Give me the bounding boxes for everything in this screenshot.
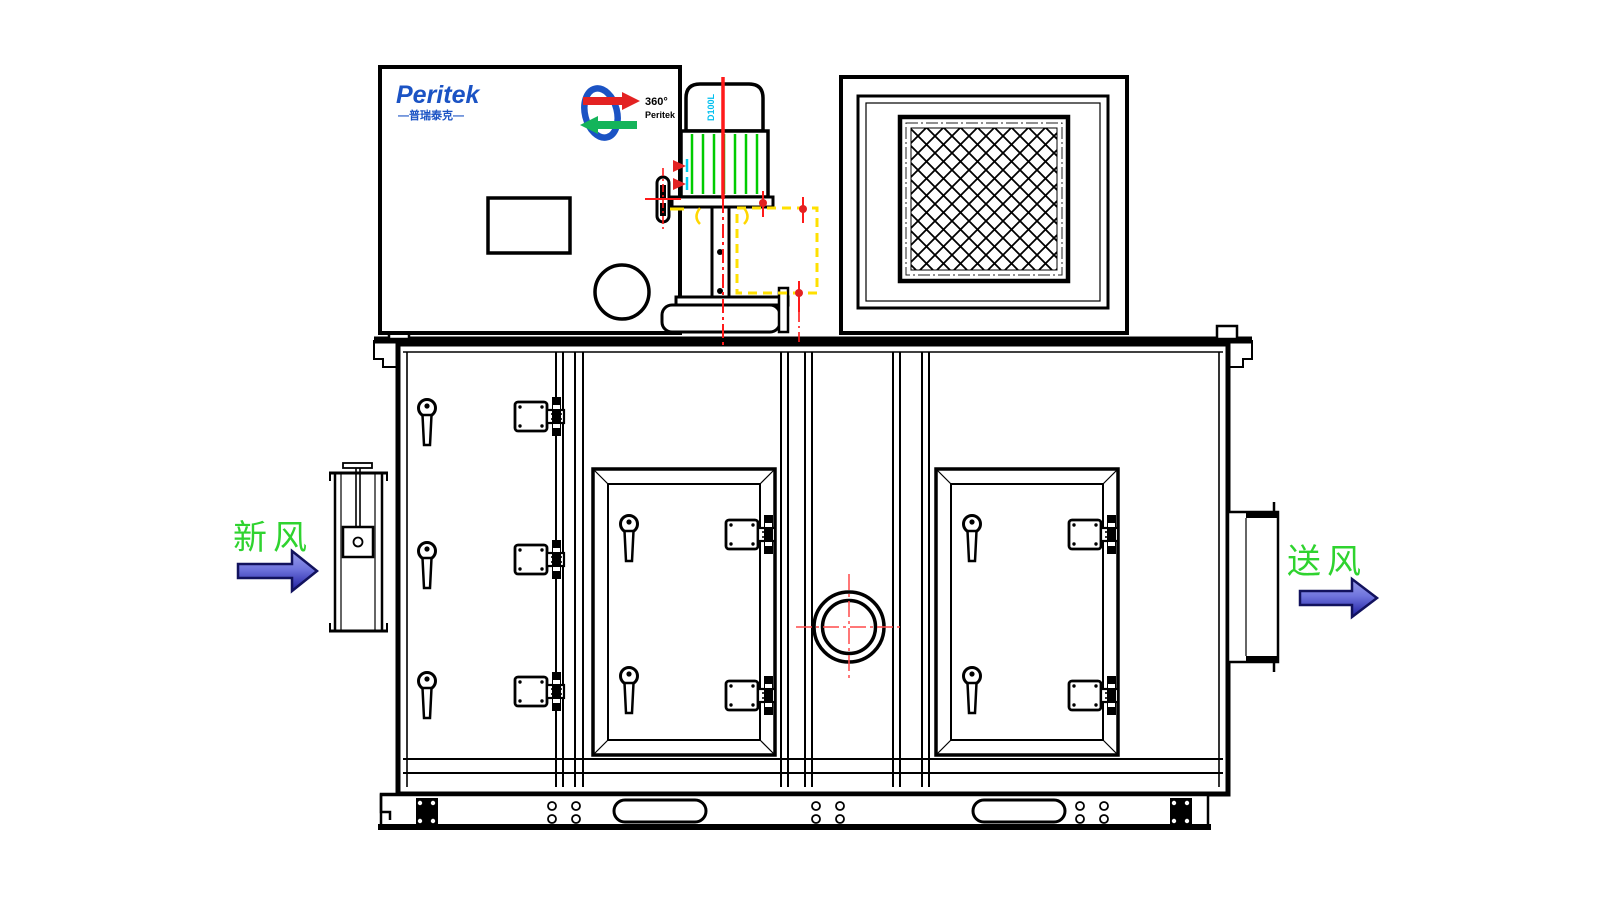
bracket-foot (662, 305, 780, 332)
peritek-logo-subtext: —普瑞泰克— (398, 108, 464, 122)
red-bolt-2 (799, 197, 807, 223)
control-panel-cutout (488, 198, 570, 253)
latch-keeper (552, 397, 561, 436)
duct-highlight-dashed (737, 208, 817, 293)
filter-grille-box (841, 77, 1127, 333)
motor-model-label: D100L (706, 93, 716, 121)
mesh-screen (911, 128, 1057, 270)
cabinet-body (374, 326, 1252, 794)
drawing-canvas: Peritek —普瑞泰克— 360° Peritek D100L (0, 0, 1613, 897)
latch-keeper (1107, 515, 1116, 554)
cable-gland-circle (595, 265, 649, 319)
latch-keeper (764, 676, 773, 715)
right-access-door (936, 469, 1118, 755)
rotor-logo-name: Peritek (645, 110, 676, 120)
middle-access-door (593, 469, 775, 755)
latch-keeper (764, 515, 773, 554)
supply-air-arrow-icon (1300, 579, 1377, 617)
supply-air-flange (1228, 502, 1278, 672)
bracket-side-bar (779, 288, 788, 332)
red-bolt-3 (795, 281, 803, 346)
damper-rod-top (343, 463, 372, 468)
forklift-slot-right (973, 800, 1065, 822)
base-bracket-right (1170, 798, 1192, 824)
base-rail (378, 794, 1211, 827)
electrical-box: Peritek —普瑞泰克— 360° Peritek (380, 67, 680, 333)
peritek-logo-text: Peritek (396, 81, 480, 109)
fresh-air-label: 新风 (233, 519, 313, 557)
flange-body (1228, 512, 1278, 662)
top-right-step (1228, 340, 1252, 367)
latch-keeper (552, 672, 561, 711)
rotor-logo-degree: 360° (645, 96, 668, 108)
forklift-slot-left (614, 800, 706, 822)
yellow-arc-left (697, 208, 701, 224)
fresh-air-damper (329, 463, 388, 631)
actuator-shaft (354, 538, 363, 547)
base-bracket-left (416, 798, 438, 824)
yellow-arc-right (744, 208, 748, 224)
engineering-drawing: Peritek —普瑞泰克— 360° Peritek D100L (0, 0, 1613, 897)
top-left-step (374, 340, 398, 367)
fresh-air-arrow-icon (238, 551, 317, 591)
latch-keeper (1107, 676, 1116, 715)
latch-keeper (552, 540, 561, 579)
supply-air-label: 送风 (1287, 543, 1367, 581)
top-right-tab (1217, 326, 1237, 339)
